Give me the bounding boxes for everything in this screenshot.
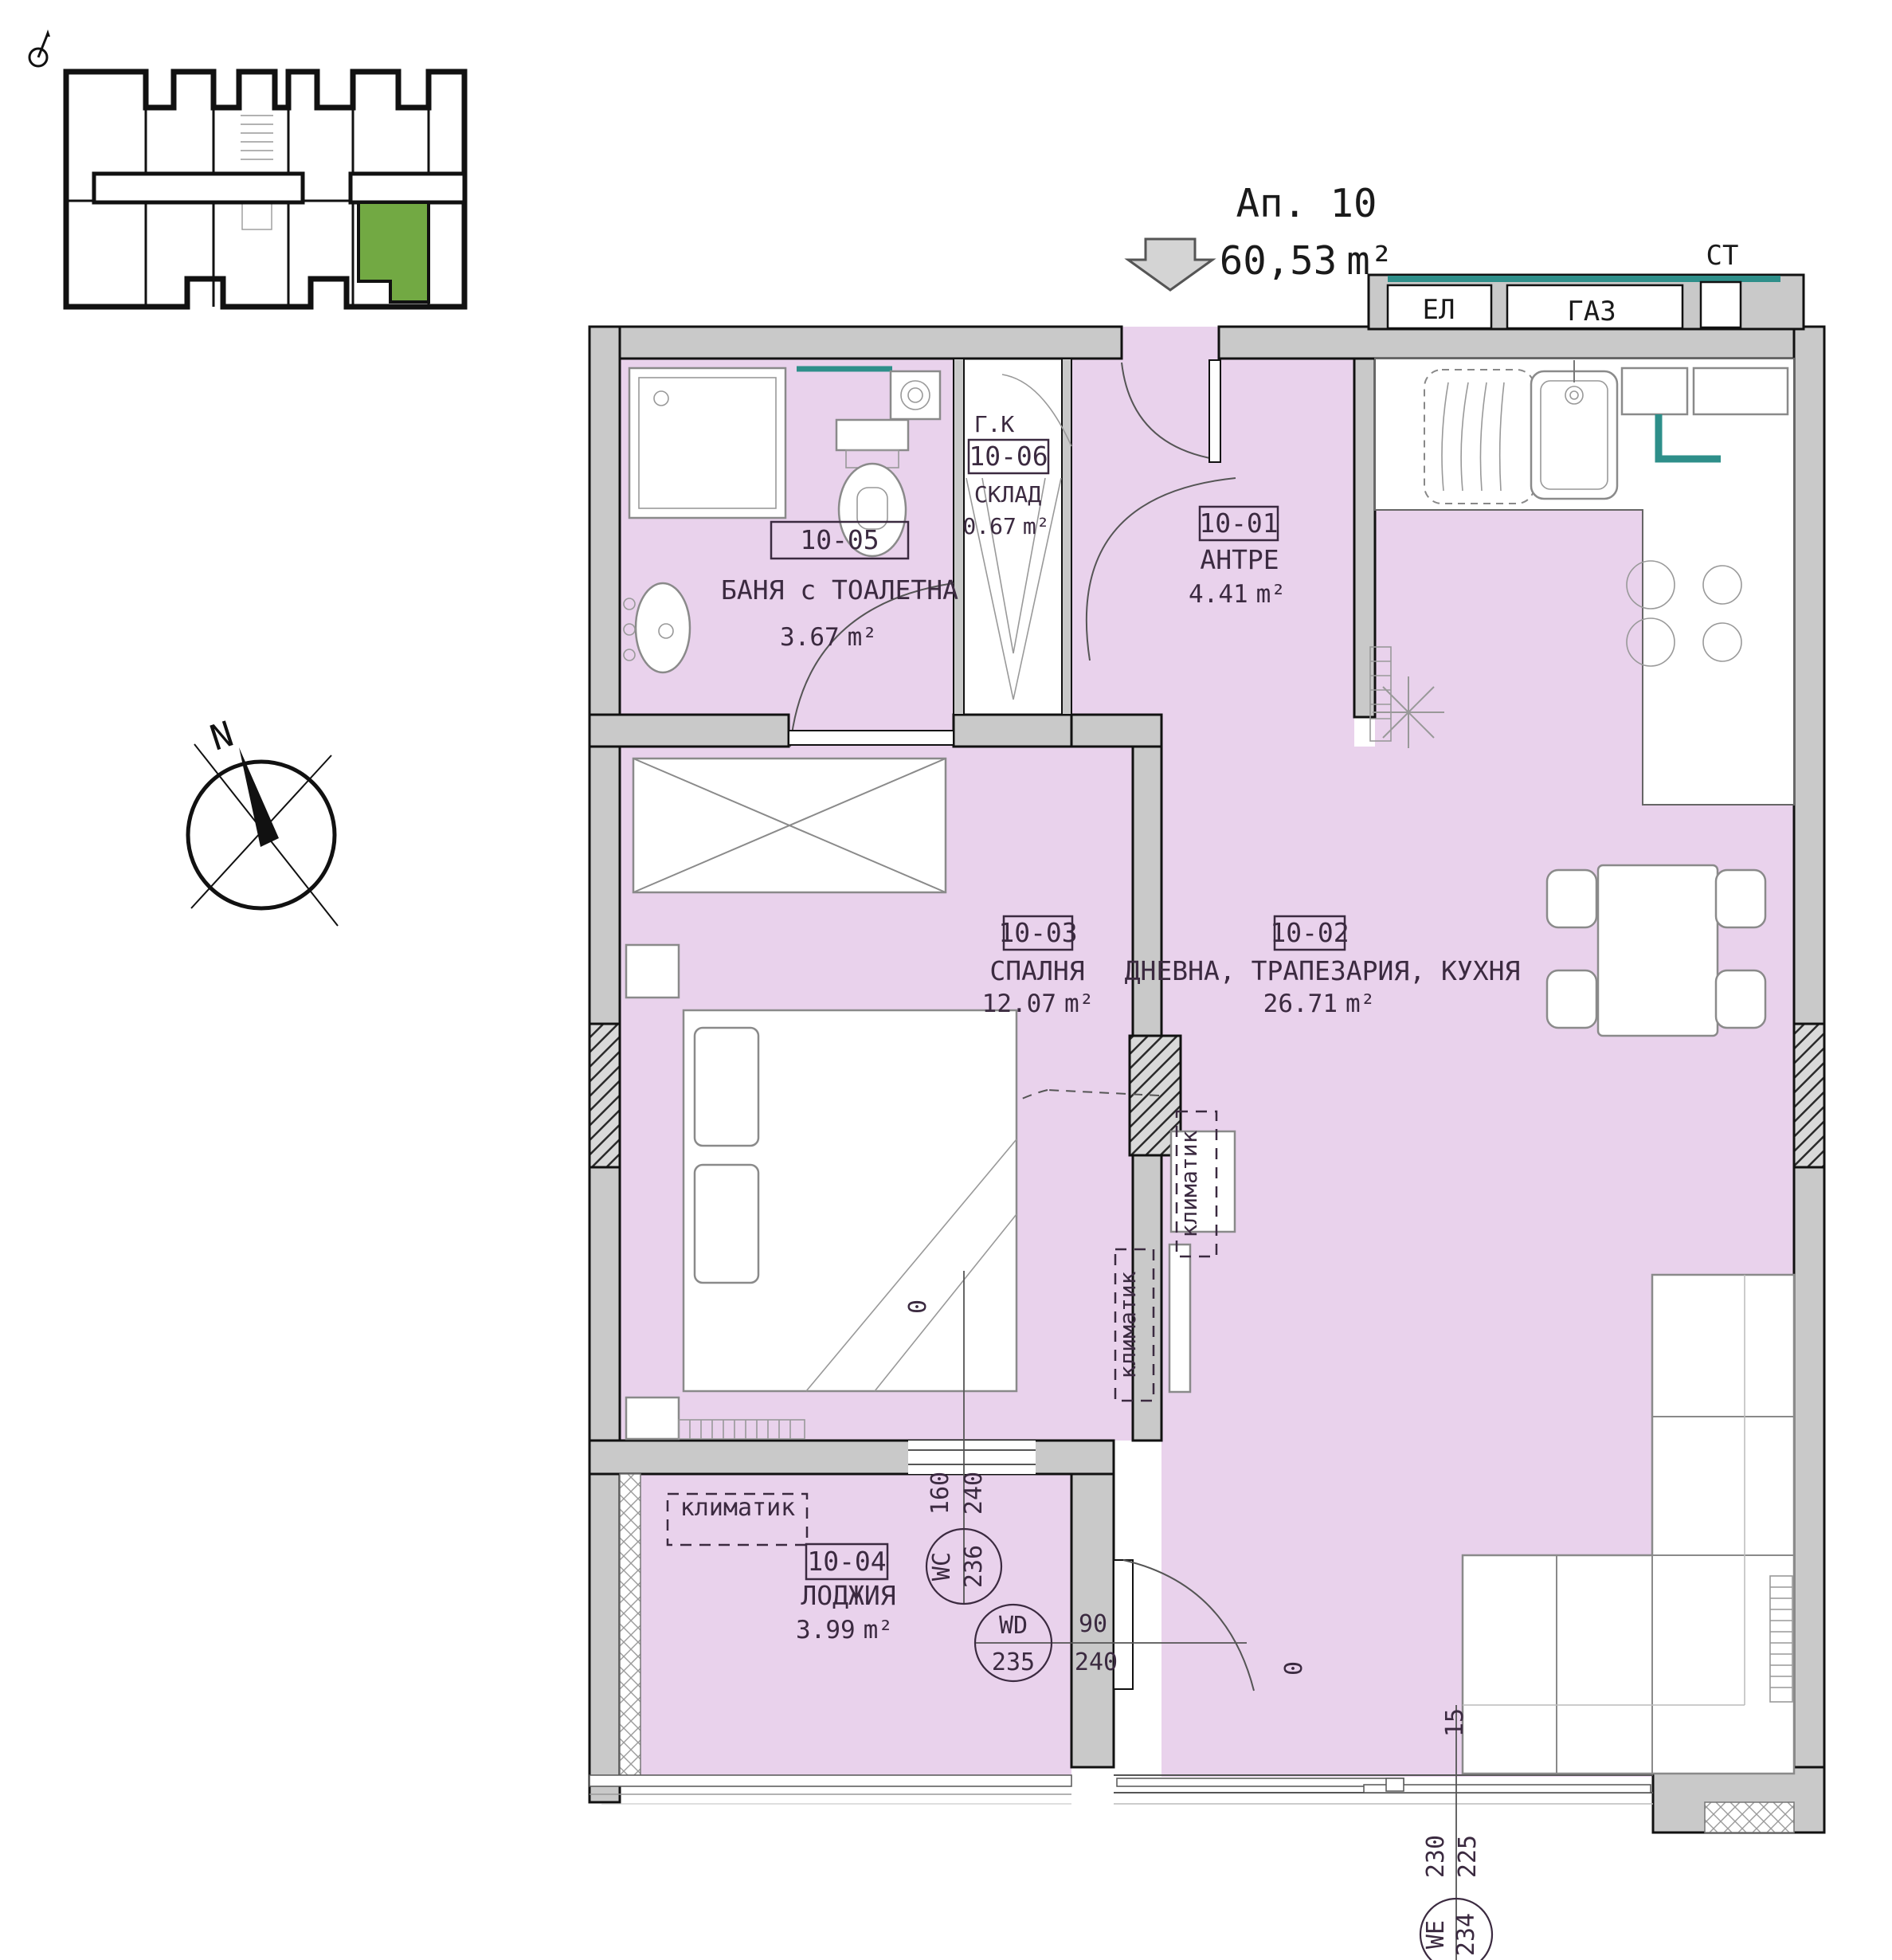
building-key-plan <box>66 72 464 307</box>
room-name-10-01: АНТРЕ <box>1200 544 1279 575</box>
pillow-icon <box>695 1028 758 1146</box>
window-handle <box>1386 1778 1404 1791</box>
dim-wc-width: 160 <box>926 1472 954 1515</box>
ac-label: климатик <box>680 1494 796 1522</box>
washing-machine-icon <box>891 371 940 419</box>
ac-label: климатик <box>1114 1271 1141 1378</box>
room-id-10-01: 10-01 <box>1199 508 1278 539</box>
shaft-el-label: ЕЛ <box>1423 294 1455 326</box>
pen-icon <box>29 29 50 66</box>
marker-we-code: WE <box>1422 1920 1450 1949</box>
room-area-10-01: 4.41m² <box>1189 580 1286 609</box>
room-name-10-05: БАНЯ с ТОАЛЕТНА <box>721 574 958 606</box>
corridor-bar-left <box>94 174 303 202</box>
cabinet-icon <box>1622 368 1687 414</box>
corridor-bar-right <box>351 174 464 202</box>
floor-plan-page: N Ап. 10 60,53m² <box>0 0 1892 1960</box>
room-id-10-02: 10-02 <box>1270 917 1349 948</box>
dim-we-width: 230 <box>1422 1835 1450 1878</box>
room-area-10-06: 0.67m² <box>962 513 1049 539</box>
room-name-10-04: ЛОДЖИЯ <box>801 1580 895 1611</box>
floor-plan-drawing: N Ап. 10 60,53m² <box>0 0 1892 1960</box>
wall-bath-bedroom <box>590 715 789 747</box>
room-area-10-05: 3.67m² <box>780 623 877 652</box>
dim-wd-height: 240 <box>1075 1648 1118 1676</box>
wall-storage-hall <box>1062 359 1071 715</box>
insulation-loggia-wall <box>620 1474 640 1777</box>
chair-icon <box>1547 970 1596 1028</box>
marker-wd-code: WD <box>999 1612 1028 1640</box>
plan-title: Ап. 10 60,53m² <box>1220 181 1394 284</box>
room-id-10-05: 10-05 <box>800 524 879 555</box>
pier-left-hatched <box>590 1024 620 1167</box>
wall-hall-kitchen <box>1354 359 1375 717</box>
shower-icon <box>629 368 785 518</box>
ac-label: климатик <box>1176 1130 1202 1237</box>
nightstand-icon <box>626 945 679 998</box>
room-name-10-02: ДНЕВНА, ТРАПЕЗАРИЯ, КУХНЯ <box>1125 955 1521 986</box>
bathroom-door-leaf <box>789 731 954 745</box>
room-name-10-06: СКЛАД <box>974 481 1041 508</box>
dining-table-icon <box>1598 865 1718 1036</box>
dim-zero: 0 <box>1280 1661 1308 1676</box>
pillow-icon <box>695 1165 758 1283</box>
marker-we-num: 234 <box>1452 1913 1480 1956</box>
window-wc-opening <box>908 1441 1036 1474</box>
sliding-panel-2 <box>1364 1785 1651 1793</box>
apartment-area: 60,53m² <box>1220 238 1394 284</box>
chair-icon <box>1716 870 1765 927</box>
wall-hall-bedroom <box>1071 715 1161 747</box>
loggia-parapet <box>590 1775 1071 1786</box>
kitchen-sink-icon <box>1531 360 1617 499</box>
wall-top-left <box>590 327 1122 359</box>
tv-icon <box>1169 1245 1190 1392</box>
room-name-10-03: СПАЛНЯ <box>989 955 1084 986</box>
pier-right-hatched <box>1794 1024 1824 1167</box>
room-id-10-04: 10-04 <box>807 1546 886 1577</box>
north-compass: N <box>188 714 338 926</box>
entrance-arrow-icon <box>1128 239 1212 290</box>
nightstand-icon <box>626 1397 679 1439</box>
dim-we-height: 225 <box>1454 1835 1482 1878</box>
marker-wc-num: 236 <box>960 1545 988 1588</box>
marker-wd-num: 235 <box>992 1648 1035 1676</box>
sliding-panel-1 <box>1117 1778 1404 1786</box>
apartment-number: Ап. 10 <box>1236 181 1377 226</box>
room-area-10-02: 26.71m² <box>1263 990 1376 1018</box>
shaft-st-label: СТ <box>1706 240 1739 272</box>
cabinet-icon <box>1694 368 1788 414</box>
dim-wc-height: 240 <box>960 1472 988 1515</box>
room-id-10-06: 10-06 <box>969 441 1048 472</box>
room-area-10-03: 12.07m² <box>982 990 1095 1018</box>
boiler-label: Г.К <box>974 411 1015 437</box>
chair-icon <box>1716 970 1765 1028</box>
dim-wd-width: 90 <box>1079 1610 1107 1638</box>
wall-top-right <box>1219 327 1824 359</box>
entrance-door-leaf <box>1209 360 1220 462</box>
shaft-gas-label: ГАЗ <box>1567 296 1616 327</box>
compass-north-label: N <box>206 714 238 759</box>
chair-icon <box>1547 870 1596 927</box>
marker-wc-code: WC <box>928 1552 956 1581</box>
dim-sill: 15 <box>1441 1708 1469 1737</box>
shaft-st <box>1701 282 1741 327</box>
room-area-10-04: 3.99m² <box>796 1616 893 1644</box>
dim-zero: 0 <box>904 1299 932 1314</box>
asterisk-symbol <box>1373 676 1444 748</box>
room-id-10-03: 10-03 <box>998 917 1077 948</box>
utility-shafts: ЕЛ ГАЗ СТ <box>1369 240 1804 329</box>
